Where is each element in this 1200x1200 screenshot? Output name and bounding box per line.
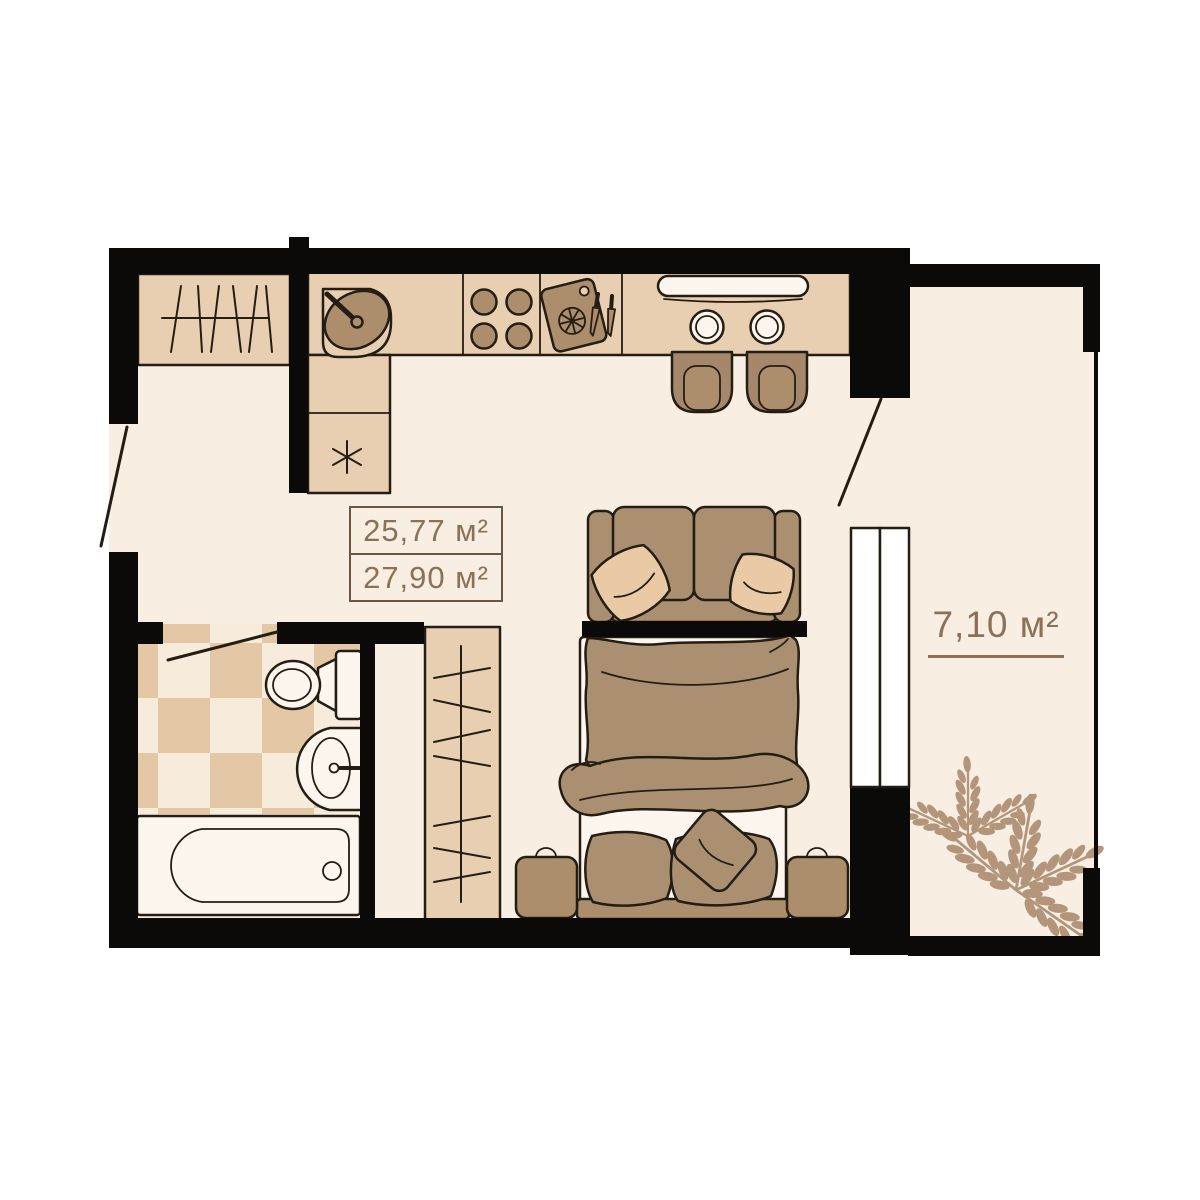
floor-plan-drawing bbox=[0, 0, 1200, 1200]
bed-pillow bbox=[585, 832, 673, 906]
area-summary-box: 25,77 м² 27,90 м² bbox=[349, 506, 503, 602]
bathtub-icon bbox=[137, 816, 360, 915]
entry-wardrobe-icon bbox=[138, 274, 290, 365]
bathroom-wall bbox=[360, 622, 375, 918]
double-bed-icon bbox=[560, 635, 809, 919]
balcony-area-label: 7,10 м² bbox=[928, 604, 1064, 658]
nightstand-icon bbox=[787, 848, 848, 918]
washbasin-icon bbox=[297, 728, 362, 810]
balcony-pier bbox=[850, 248, 910, 398]
floor-plan-page: 25,77 м² 27,90 м² 7,10 м² bbox=[0, 0, 1200, 1200]
living-area-label: 25,77 м² bbox=[351, 508, 501, 553]
plate-icon bbox=[751, 311, 784, 344]
sofa-icon bbox=[586, 507, 800, 628]
kitchen-divider-wall bbox=[289, 274, 308, 493]
dining-chair-icon bbox=[672, 352, 732, 412]
nightstand-icon bbox=[516, 848, 577, 918]
serving-dish-icon bbox=[658, 276, 808, 296]
plate-icon bbox=[691, 311, 724, 344]
tv-partition bbox=[582, 621, 807, 637]
dining-chair-icon bbox=[747, 352, 807, 412]
total-area-label: 27,90 м² bbox=[351, 553, 501, 600]
window-icon bbox=[851, 528, 909, 787]
blanket bbox=[585, 635, 798, 769]
tall-wardrobe-icon bbox=[425, 627, 500, 920]
